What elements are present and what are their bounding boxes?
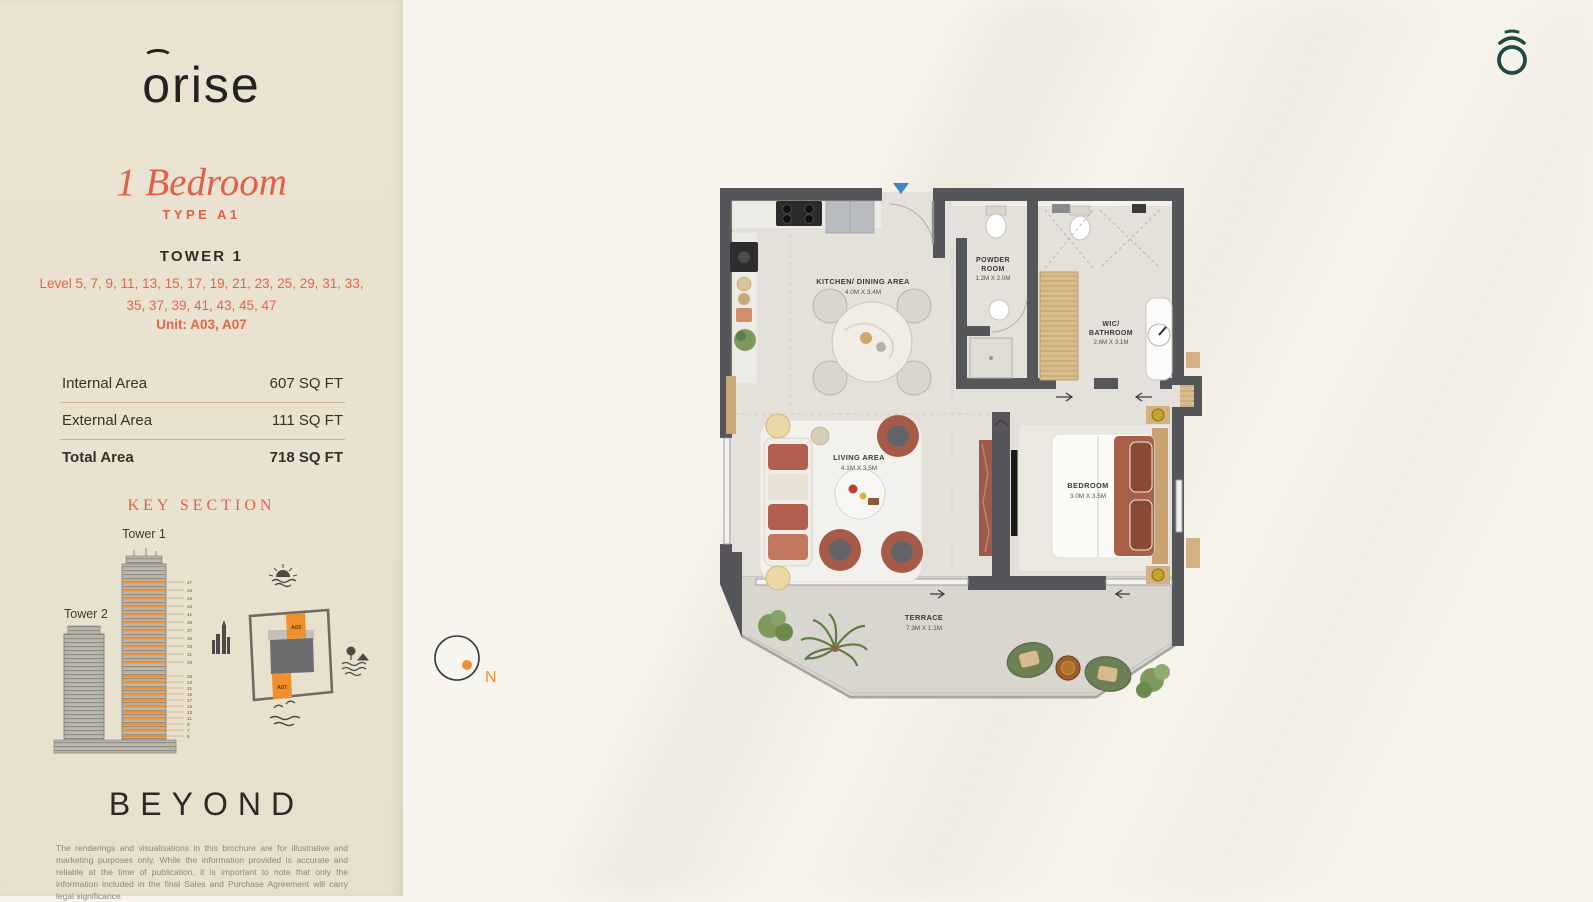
lamp-icon (1152, 409, 1164, 421)
terrace-label: TERRACE (905, 613, 944, 622)
svg-text:39: 39 (187, 620, 193, 625)
area-table: Internal Area 607 SQ FT External Area 11… (60, 366, 345, 476)
brochure-page: { "brand": { "logo_o": "o", "logo_rest":… (0, 0, 1593, 896)
floor-leader-lines (167, 582, 184, 736)
tower1-roof (126, 556, 162, 564)
living-furniture (760, 414, 923, 590)
toilet-icon (1070, 216, 1090, 240)
svg-text:43: 43 (187, 604, 193, 609)
sunset-icon (269, 564, 297, 587)
area-label: Internal Area (62, 375, 147, 392)
svg-text:29: 29 (187, 660, 193, 665)
logo-rest: rise (172, 57, 261, 113)
svg-text:25: 25 (187, 674, 193, 679)
svg-text:46: 46 (187, 588, 193, 593)
area-label: Total Area (62, 449, 134, 466)
basin-icon (989, 300, 1009, 320)
plant-icon (734, 329, 756, 351)
compass-icon: N (431, 632, 501, 692)
unit-numbers: Unit: A03, A07 (0, 317, 403, 332)
area-value: 111 SQ FT (272, 412, 343, 429)
side-lamp-icon (766, 414, 790, 438)
svg-text:11: 11 (187, 716, 192, 721)
lamp-icon (1152, 569, 1164, 581)
levels-line2: 35, 37, 39, 41, 43, 45, 47 (0, 295, 403, 317)
page-title: 1 Bedroom (0, 160, 403, 205)
logo-o-accent: o (142, 56, 172, 114)
svg-text:33: 33 (187, 644, 193, 649)
table-row: External Area 111 SQ FT (60, 403, 345, 440)
svg-text:41: 41 (187, 612, 193, 617)
svg-text:9: 9 (187, 722, 190, 727)
birds-icon (270, 701, 300, 725)
tower1-label: Tower 1 (122, 527, 166, 541)
key-section-title: KEY SECTION (0, 497, 403, 515)
tv-icon (1011, 450, 1018, 536)
legal-disclaimer: The renderings and visualisations in thi… (56, 843, 348, 902)
terrace-dims: 7.3M X 1.1M (906, 625, 942, 632)
svg-text:7: 7 (187, 728, 190, 733)
city-skyline-icon (212, 620, 230, 654)
svg-text:35: 35 (187, 636, 193, 641)
coffee-table-icon (835, 469, 885, 519)
dining-table-icon (832, 302, 912, 382)
area-label: External Area (62, 412, 152, 429)
tower-label: TOWER 1 (0, 248, 403, 265)
svg-text:45: 45 (187, 596, 193, 601)
wardrobe-icon (1040, 272, 1078, 380)
bedroom-dims: 3.0M X 3.5M (1070, 493, 1106, 500)
kitchen-label: KITCHEN/ DINING AREA (816, 277, 910, 286)
area-value: 718 SQ FT (270, 449, 343, 466)
table-row-total: Total Area 718 SQ FT (60, 440, 345, 476)
orise-logo: orise (0, 56, 403, 114)
svg-text:31: 31 (187, 652, 193, 657)
main-canvas: KITCHEN/ DINING AREA 4.0M X 3.4M POWDER … (403, 0, 1593, 896)
marble-panel (979, 440, 992, 556)
tower2-building (64, 634, 104, 746)
svg-text:15: 15 (187, 704, 193, 709)
wic-dims: 2.6M X 3.1M (1093, 339, 1128, 346)
tower2-roof (68, 626, 100, 634)
svg-text:13: 13 (187, 710, 193, 715)
table-row: Internal Area 607 SQ FT (60, 366, 345, 403)
svg-text:37: 37 (187, 628, 193, 633)
svg-text:21: 21 (187, 686, 193, 691)
powder-label-2: ROOM (981, 266, 1004, 273)
svg-text:5: 5 (187, 734, 190, 739)
stove-icon (776, 201, 822, 226)
bedroom-label: BEDROOM (1067, 481, 1108, 490)
floorplan: KITCHEN/ DINING AREA 4.0M X 3.4M POWDER … (700, 180, 1220, 720)
powder-label-1: POWDER (976, 257, 1010, 264)
svg-text:23: 23 (187, 680, 193, 685)
svg-text:19: 19 (187, 692, 193, 697)
powder-dims: 1.2M X 2.0M (975, 275, 1010, 282)
living-dims: 4.1M X 3.5M (841, 465, 877, 472)
unit-a07-label: A07 (277, 685, 287, 691)
north-label: N (485, 669, 497, 686)
levels-text: Level 5, 7, 9, 11, 13, 15, 17, 19, 21, 2… (0, 273, 403, 317)
living-label: LIVING AREA (833, 453, 885, 462)
podium (54, 740, 176, 753)
floorplan-drawing: KITCHEN/ DINING AREA 4.0M X 3.4M POWDER … (700, 180, 1220, 720)
svg-text:17: 17 (187, 698, 193, 703)
tree-waves-icon (342, 647, 368, 676)
kitchen-dims: 4.0M X 3.4M (845, 289, 881, 296)
toilet-icon (986, 214, 1006, 238)
levels-line1: Level 5, 7, 9, 11, 13, 15, 17, 19, 21, 2… (0, 273, 403, 295)
area-value: 607 SQ FT (270, 375, 343, 392)
svg-text:47: 47 (187, 580, 193, 585)
closet-nook (1180, 385, 1194, 407)
beyond-logo: BEYOND (0, 786, 403, 823)
floor-numbers: 4746 4543 4139 3735 3331 29 2523 2119 17… (187, 580, 193, 739)
key-section-diagram: Tower 1 Tower 2 (46, 522, 376, 757)
orise-logo-mark-icon (1491, 26, 1533, 78)
unit-a03-label: A03 (291, 625, 301, 631)
wic-label-2: BATHROOM (1089, 330, 1133, 337)
sidebar-panel: orise 1 Bedroom TYPE A1 TOWER 1 Level 5,… (0, 0, 403, 896)
side-lamp-icon (766, 566, 790, 590)
key-floor-plate: A03 A07 (250, 610, 332, 700)
unit-type-label: TYPE A1 (0, 207, 403, 222)
tower2-label: Tower 2 (64, 607, 108, 621)
wic-label-1: WIC/ (1102, 321, 1119, 328)
